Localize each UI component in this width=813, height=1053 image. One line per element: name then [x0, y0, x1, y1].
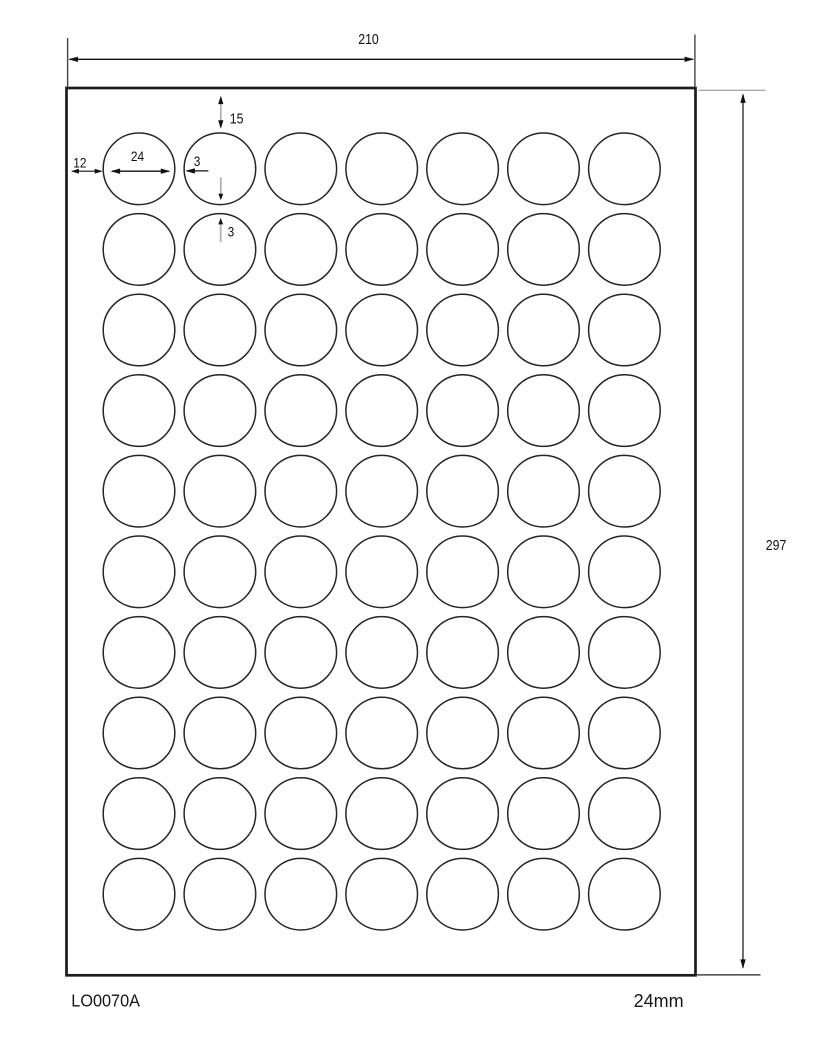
- svg-text:24mm: 24mm: [634, 991, 684, 1011]
- svg-text:LO0070A: LO0070A: [71, 991, 140, 1011]
- svg-text:210: 210: [358, 31, 379, 47]
- svg-text:297: 297: [766, 537, 787, 553]
- svg-text:3: 3: [228, 223, 235, 239]
- svg-text:15: 15: [230, 110, 244, 126]
- svg-text:12: 12: [73, 154, 86, 170]
- svg-text:3: 3: [194, 153, 201, 169]
- svg-text:24: 24: [131, 148, 144, 164]
